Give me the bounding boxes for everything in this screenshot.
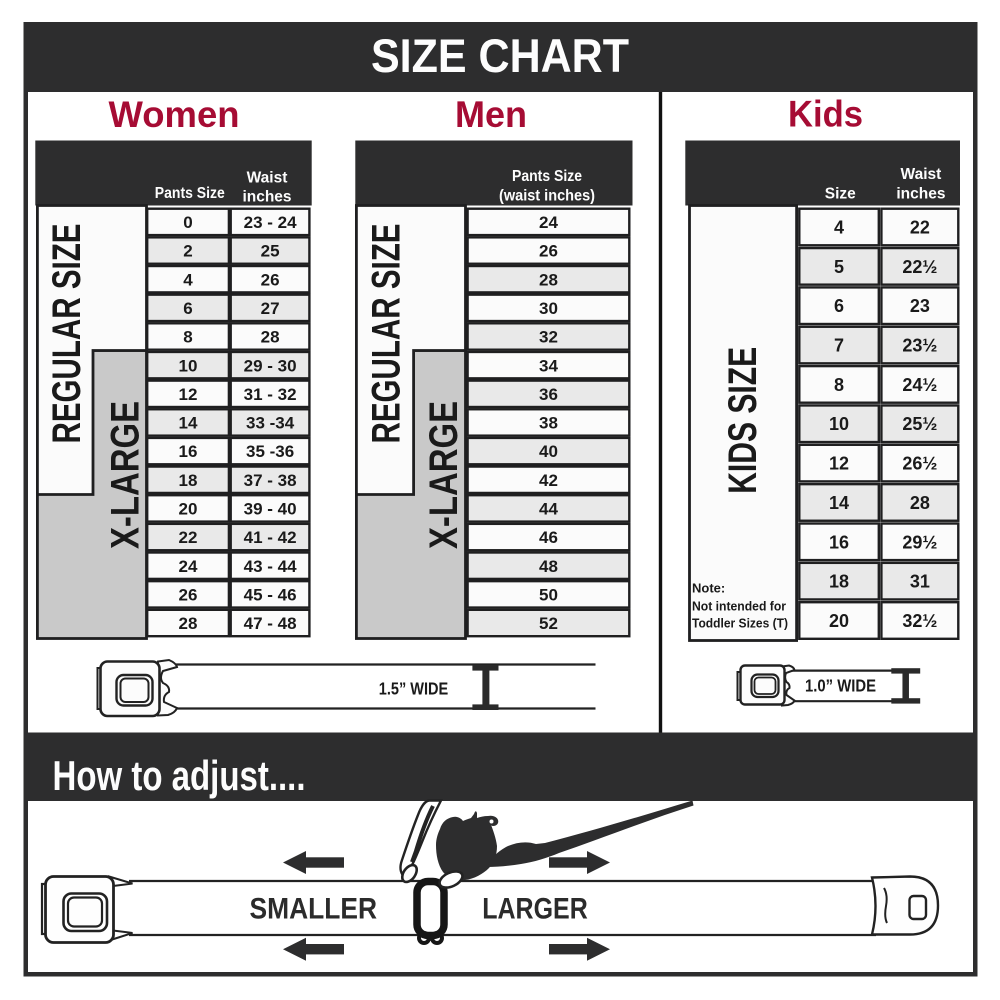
- svg-text:28: 28: [261, 328, 280, 347]
- svg-text:29 - 30: 29 - 30: [244, 356, 297, 375]
- svg-text:23½: 23½: [902, 336, 937, 356]
- svg-text:How to adjust....: How to adjust....: [53, 752, 306, 799]
- svg-text:14: 14: [179, 414, 198, 433]
- svg-text:40: 40: [539, 442, 558, 461]
- svg-text:22: 22: [179, 528, 198, 547]
- svg-text:12: 12: [179, 385, 198, 404]
- svg-text:32: 32: [539, 328, 558, 347]
- svg-text:Pants Size: Pants Size: [155, 185, 225, 202]
- svg-text:30: 30: [539, 299, 558, 318]
- svg-text:1.5” WIDE: 1.5” WIDE: [379, 679, 449, 699]
- svg-text:1.0” WIDE: 1.0” WIDE: [805, 675, 876, 695]
- svg-text:Toddler Sizes (T): Toddler Sizes (T): [692, 616, 788, 631]
- svg-text:28: 28: [179, 614, 198, 633]
- svg-text:REGULAR SIZE: REGULAR SIZE: [45, 224, 89, 444]
- svg-text:32½: 32½: [902, 611, 937, 631]
- svg-text:10: 10: [829, 414, 849, 434]
- svg-text:Not intended for: Not intended for: [692, 599, 786, 614]
- svg-text:37 - 38: 37 - 38: [244, 471, 297, 490]
- svg-text:20: 20: [829, 611, 849, 631]
- svg-text:4: 4: [183, 270, 193, 289]
- svg-text:36: 36: [539, 385, 558, 404]
- svg-text:10: 10: [179, 356, 198, 375]
- svg-text:31: 31: [910, 572, 930, 592]
- svg-text:0: 0: [183, 213, 192, 232]
- svg-text:27: 27: [261, 299, 280, 318]
- svg-text:24: 24: [179, 557, 198, 576]
- svg-text:29½: 29½: [902, 532, 937, 552]
- svg-text:6: 6: [183, 299, 192, 318]
- svg-text:26: 26: [539, 242, 558, 261]
- svg-text:X-LARGE: X-LARGE: [422, 401, 466, 549]
- svg-text:52: 52: [539, 614, 558, 633]
- svg-text:2: 2: [183, 242, 192, 261]
- svg-text:8: 8: [183, 328, 192, 347]
- svg-text:KIDS SIZE: KIDS SIZE: [721, 347, 765, 494]
- svg-text:25½: 25½: [902, 414, 937, 434]
- svg-text:35 -36: 35 -36: [246, 442, 294, 461]
- svg-text:12: 12: [829, 454, 849, 474]
- svg-text:42: 42: [539, 471, 558, 490]
- svg-text:28: 28: [910, 493, 930, 513]
- svg-text:26½: 26½: [902, 454, 937, 474]
- svg-text:44: 44: [539, 500, 558, 519]
- svg-text:SIZE CHART: SIZE CHART: [371, 29, 629, 82]
- svg-text:16: 16: [829, 532, 849, 552]
- svg-text:LARGER: LARGER: [482, 893, 588, 926]
- svg-text:Waist: Waist: [247, 170, 288, 187]
- svg-text:28: 28: [539, 270, 558, 289]
- svg-text:Kids: Kids: [788, 94, 863, 135]
- svg-text:39 - 40: 39 - 40: [244, 500, 297, 519]
- svg-text:46: 46: [539, 528, 558, 547]
- svg-text:18: 18: [179, 471, 198, 490]
- svg-text:Waist: Waist: [901, 166, 942, 183]
- svg-text:14: 14: [829, 493, 849, 513]
- svg-text:Men: Men: [455, 94, 527, 135]
- svg-text:23: 23: [910, 296, 930, 316]
- svg-text:24: 24: [539, 213, 558, 232]
- svg-text:X-LARGE: X-LARGE: [104, 401, 148, 549]
- svg-text:34: 34: [539, 356, 558, 375]
- svg-text:26: 26: [179, 585, 198, 604]
- svg-text:Note:: Note:: [692, 581, 725, 596]
- svg-text:8: 8: [834, 375, 844, 395]
- svg-text:SMALLER: SMALLER: [250, 893, 378, 926]
- svg-text:(waist inches): (waist inches): [499, 188, 595, 205]
- svg-text:45 - 46: 45 - 46: [244, 585, 297, 604]
- svg-text:20: 20: [179, 500, 198, 519]
- svg-text:43 - 44: 43 - 44: [244, 557, 297, 576]
- svg-text:5: 5: [834, 257, 844, 277]
- svg-text:Women: Women: [109, 94, 240, 135]
- svg-text:inches: inches: [242, 189, 291, 206]
- svg-text:25: 25: [261, 242, 280, 261]
- svg-text:inches: inches: [896, 186, 945, 203]
- svg-text:7: 7: [834, 336, 844, 356]
- svg-text:38: 38: [539, 414, 558, 433]
- svg-text:26: 26: [261, 270, 280, 289]
- svg-text:16: 16: [179, 442, 198, 461]
- svg-text:4: 4: [834, 217, 844, 237]
- svg-text:41 - 42: 41 - 42: [244, 528, 297, 547]
- svg-text:Pants Size: Pants Size: [512, 168, 582, 185]
- svg-text:31 - 32: 31 - 32: [244, 385, 297, 404]
- svg-text:22: 22: [910, 217, 930, 237]
- svg-text:47 - 48: 47 - 48: [244, 614, 297, 633]
- svg-text:6: 6: [834, 296, 844, 316]
- svg-text:24½: 24½: [902, 375, 937, 395]
- svg-text:22½: 22½: [902, 257, 937, 277]
- svg-text:REGULAR SIZE: REGULAR SIZE: [364, 224, 408, 444]
- svg-text:48: 48: [539, 557, 558, 576]
- svg-text:33 -34: 33 -34: [246, 414, 295, 433]
- svg-text:50: 50: [539, 585, 558, 604]
- svg-text:23 - 24: 23 - 24: [244, 213, 297, 232]
- svg-text:Size: Size: [825, 186, 856, 203]
- svg-text:18: 18: [829, 572, 849, 592]
